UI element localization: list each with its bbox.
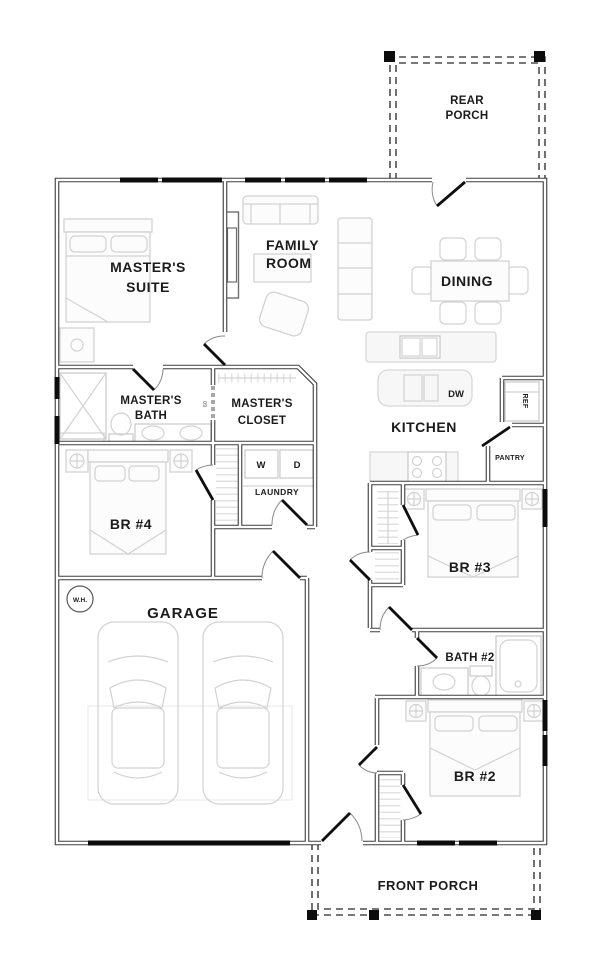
floor-plan-drawing: REAR PORCH FRONT PORCH <box>0 0 600 978</box>
door-icon <box>133 369 154 390</box>
shelf-icon <box>338 218 372 320</box>
door-icon <box>204 344 225 365</box>
chair-icon <box>440 302 466 324</box>
armchair-icon <box>258 290 311 338</box>
label-master-suite-2: SUITE <box>126 279 170 295</box>
range-icon <box>408 452 446 482</box>
label-master-bath-1: MASTER'S <box>120 395 181 407</box>
bed-icon <box>426 489 520 501</box>
label-laundry: LAUNDRY <box>255 487 299 497</box>
chair-icon <box>475 238 501 260</box>
door-icon <box>350 560 370 580</box>
front-porch: FRONT PORCH <box>307 843 541 920</box>
label-family-room-1: FAMILY <box>266 237 319 253</box>
chair-icon <box>412 267 433 294</box>
bed-icon <box>428 700 522 712</box>
porch-post <box>531 910 541 920</box>
label-ref: REF <box>521 394 528 409</box>
label-dw: DW <box>448 389 464 400</box>
door-icon <box>282 500 307 525</box>
label-br3: BR #3 <box>449 559 491 575</box>
label-pantry: PANTRY <box>495 455 525 462</box>
toilet-icon <box>470 666 492 676</box>
floor-plan-page: REAR PORCH FRONT PORCH <box>0 0 600 978</box>
label-dryer: D <box>294 460 301 471</box>
door-icon <box>389 607 412 630</box>
porch-post <box>369 910 379 920</box>
label-garage: GARAGE <box>147 605 219 622</box>
rear-porch: REAR PORCH <box>384 51 545 180</box>
chair-icon <box>475 302 501 324</box>
chair-icon <box>507 267 528 294</box>
door-icon <box>273 551 300 578</box>
laundry-appliances <box>243 450 313 486</box>
chair-icon <box>440 238 466 260</box>
bed-icon <box>88 450 168 462</box>
label-master-closet-1: MASTER'S <box>231 398 292 410</box>
porch-post <box>534 51 545 62</box>
label-door-width: 60 <box>203 401 209 407</box>
porch-post <box>384 51 395 62</box>
dresser-icon <box>60 328 94 362</box>
label-water-heater: W.H. <box>73 597 87 604</box>
label-master-bath-2: BATH <box>135 410 167 422</box>
label-master-closet-2: CLOSET <box>238 415 286 427</box>
br4-furniture <box>66 450 192 554</box>
door-icon <box>403 785 421 814</box>
label-front-porch: FRONT PORCH <box>378 878 479 893</box>
bed-icon <box>64 219 152 232</box>
door-icon <box>417 638 437 658</box>
car-icon <box>98 622 178 804</box>
label-rear-porch-1: REAR <box>450 95 484 107</box>
vanity-icon <box>421 668 468 696</box>
label-master-suite-1: MASTER'S <box>110 259 186 275</box>
porch-post <box>307 910 317 920</box>
label-bath2: BATH #2 <box>445 652 494 664</box>
label-washer: W <box>257 460 266 471</box>
door-icon <box>359 747 377 765</box>
car-icon <box>203 622 283 804</box>
door-icon <box>482 427 510 446</box>
master-bath-fixtures <box>58 373 211 443</box>
label-rear-porch-2: PORCH <box>445 110 488 122</box>
label-br4: BR #4 <box>110 516 152 532</box>
front-door-icon <box>322 813 350 841</box>
label-br2: BR #2 <box>454 768 496 784</box>
label-kitchen: KITCHEN <box>391 419 457 435</box>
label-dining: DINING <box>441 273 493 289</box>
door-icon <box>196 470 213 500</box>
label-family-room-2: ROOM <box>266 255 312 271</box>
bath2-fixtures <box>421 636 541 696</box>
